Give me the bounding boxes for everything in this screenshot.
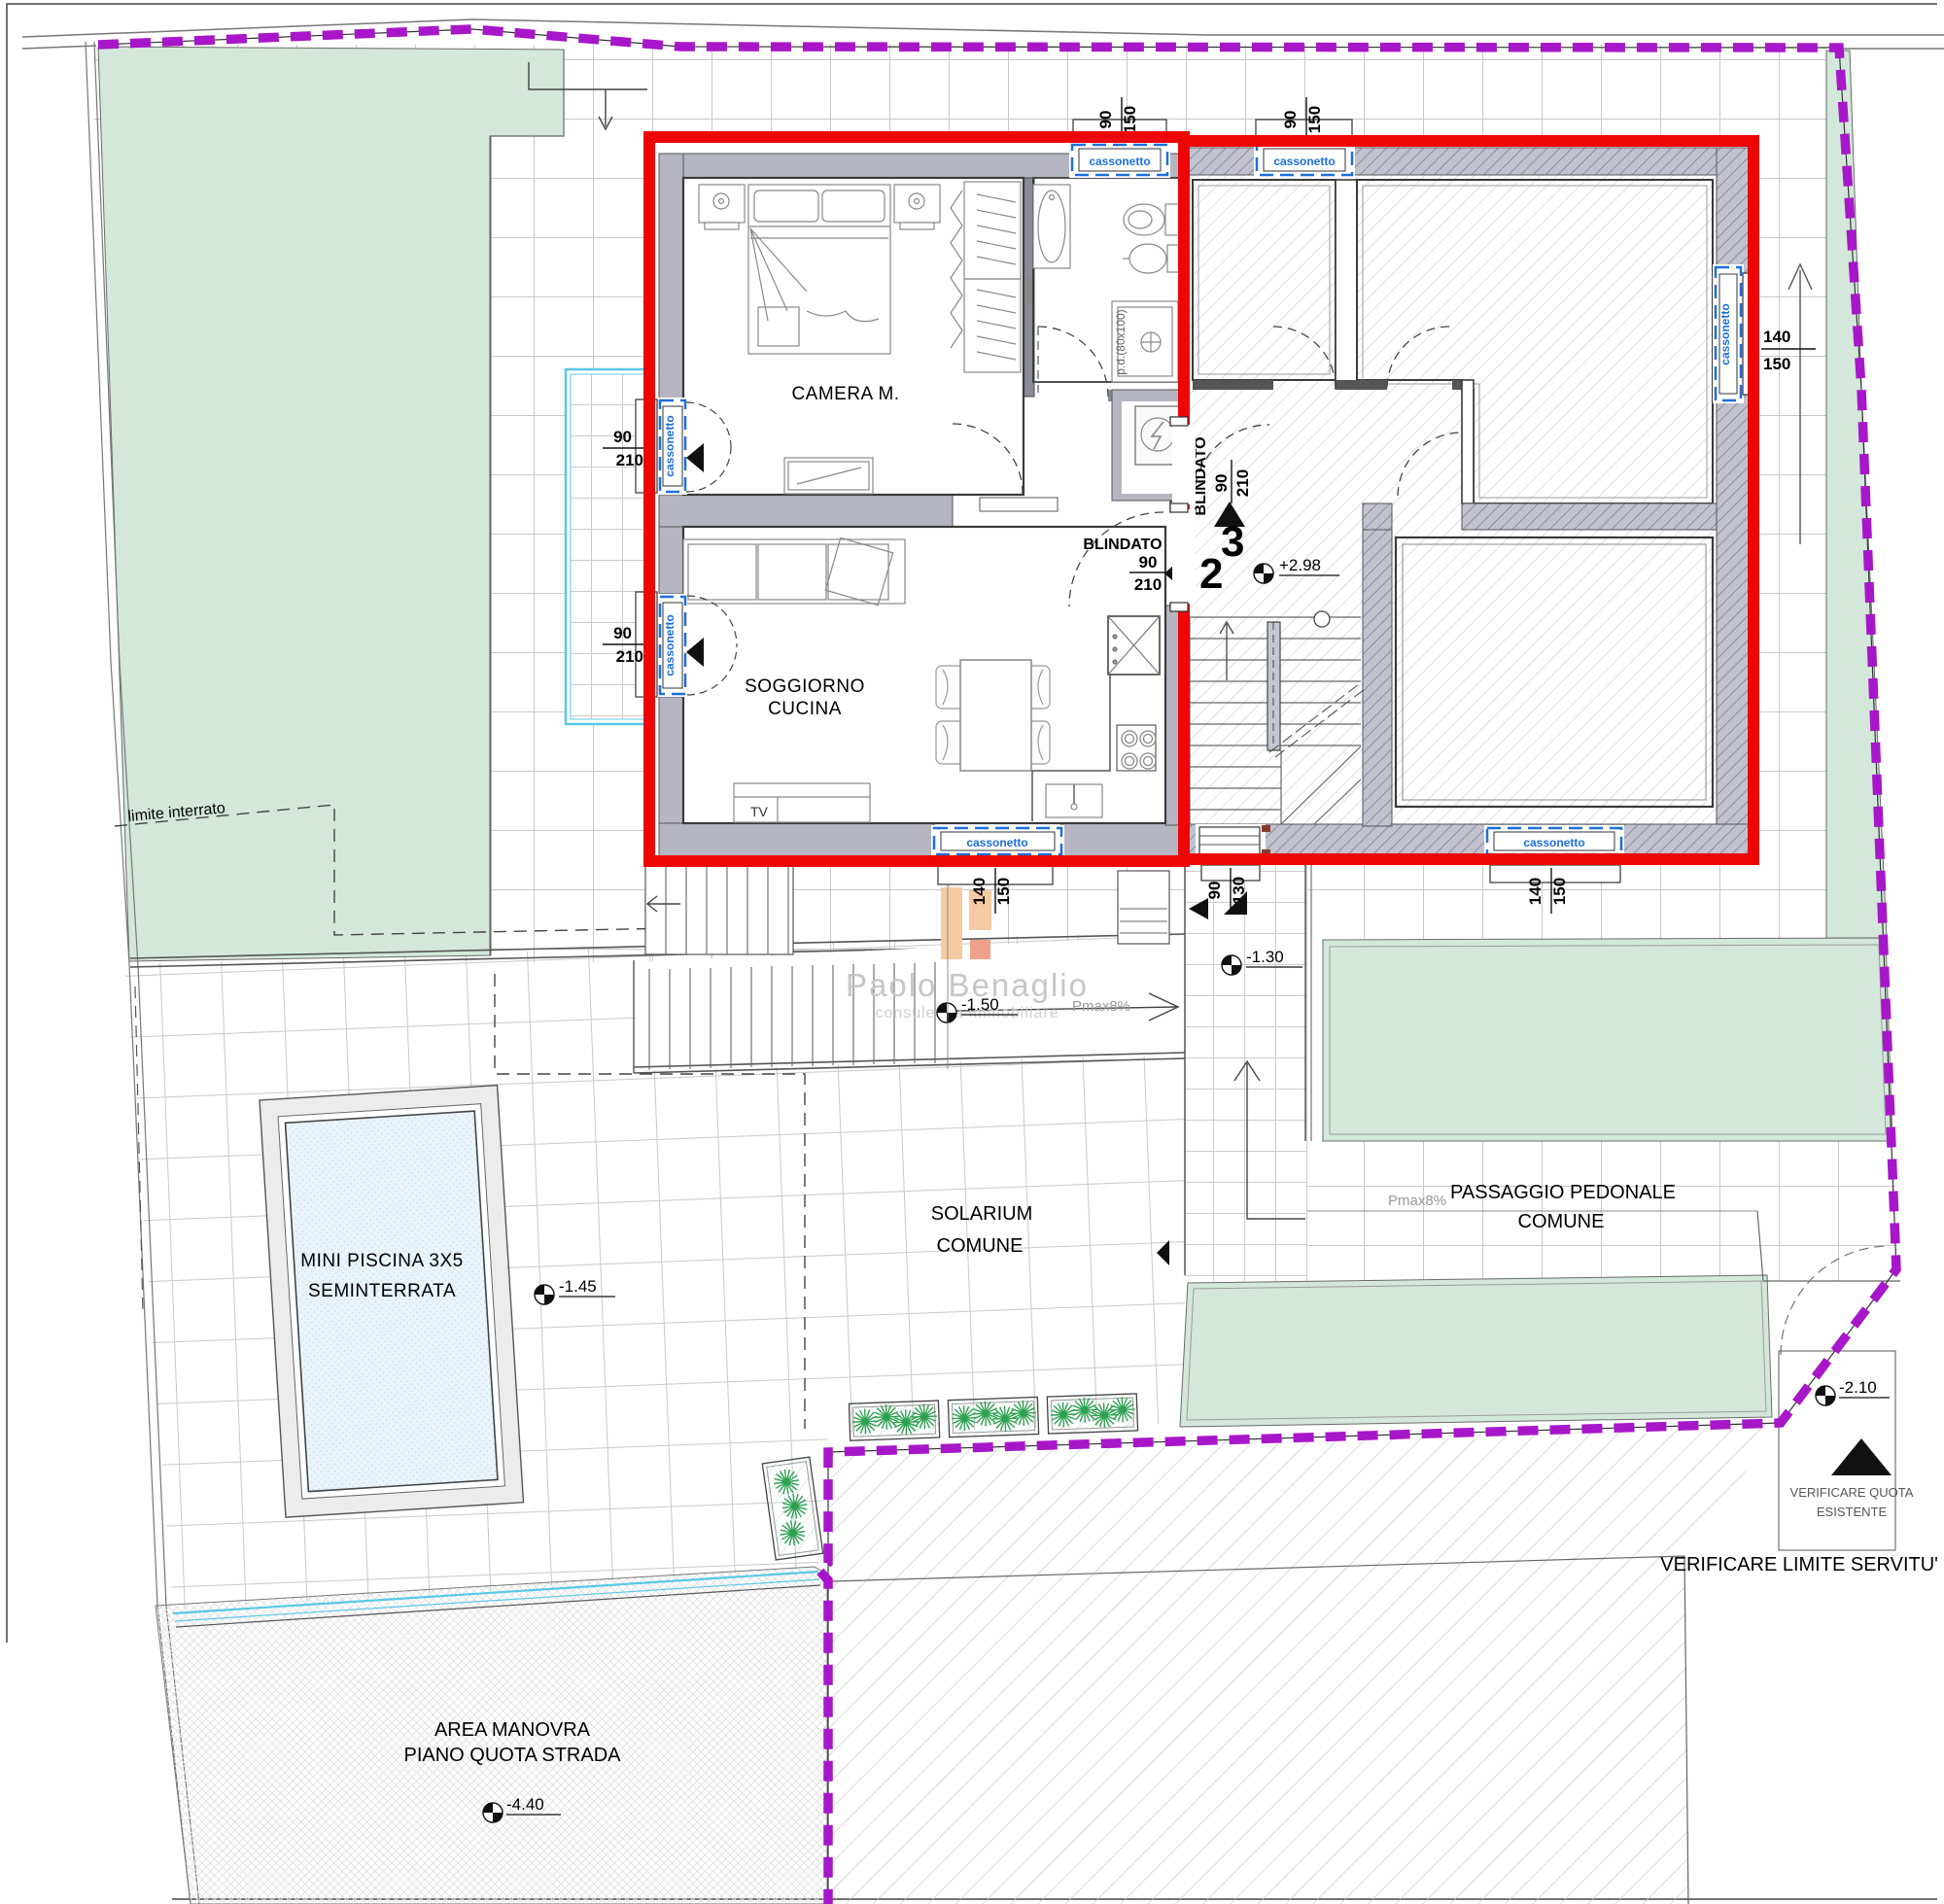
svg-text:210: 210	[1134, 575, 1162, 594]
svg-text:PASSAGGIO PEDONALE: PASSAGGIO PEDONALE	[1450, 1182, 1676, 1203]
svg-text:140: 140	[970, 878, 989, 905]
svg-text:2: 2	[1199, 550, 1223, 598]
svg-text:150: 150	[994, 878, 1013, 905]
svg-text:+2.98: +2.98	[1279, 556, 1321, 574]
svg-text:90: 90	[1205, 882, 1224, 900]
svg-text:CUCINA: CUCINA	[768, 699, 842, 719]
svg-text:150: 150	[1121, 106, 1139, 133]
svg-text:90: 90	[1096, 111, 1115, 129]
svg-text:TV: TV	[750, 804, 769, 819]
svg-text:cassonetto: cassonetto	[966, 836, 1027, 849]
svg-text:150: 150	[1763, 355, 1790, 373]
svg-text:90: 90	[1212, 474, 1231, 493]
svg-text:-2.10: -2.10	[1839, 1378, 1877, 1397]
svg-text:cassonetto: cassonetto	[663, 415, 677, 476]
svg-text:cassonetto: cassonetto	[1718, 303, 1732, 364]
svg-text:cassonetto: cassonetto	[1523, 836, 1584, 849]
svg-text:150: 150	[1305, 106, 1324, 133]
svg-text:ESISTENTE: ESISTENTE	[1817, 1505, 1888, 1519]
svg-text:cassonetto: cassonetto	[1089, 155, 1150, 168]
svg-text:COMUNE: COMUNE	[937, 1235, 1024, 1257]
svg-text:140: 140	[1763, 328, 1790, 346]
svg-text:210: 210	[616, 647, 643, 666]
svg-text:BLINDATO: BLINDATO	[1083, 537, 1162, 553]
svg-text:-4.40: -4.40	[506, 1795, 544, 1814]
svg-text:90: 90	[1139, 553, 1158, 571]
svg-text:cassonetto: cassonetto	[663, 614, 677, 675]
svg-text:3: 3	[1221, 518, 1244, 566]
svg-text:-1.45: -1.45	[559, 1277, 597, 1296]
svg-text:-1.50: -1.50	[961, 995, 999, 1014]
svg-text:90: 90	[1281, 111, 1300, 129]
svg-text:Pmax8%: Pmax8%	[1388, 1193, 1446, 1209]
svg-text:MINI PISCINA 3X5: MINI PISCINA 3X5	[300, 1251, 463, 1271]
svg-text:210: 210	[1233, 469, 1252, 497]
svg-text:SEMINTERRATA: SEMINTERRATA	[308, 1281, 456, 1301]
svg-text:COMUNE: COMUNE	[1518, 1211, 1605, 1232]
svg-text:-1.30: -1.30	[1246, 948, 1284, 966]
svg-text:cassonetto: cassonetto	[1273, 155, 1335, 168]
svg-text:90: 90	[613, 624, 632, 642]
svg-text:210: 210	[616, 451, 643, 469]
svg-text:SOGGIORNO: SOGGIORNO	[745, 676, 865, 697]
svg-text:SOLARIUM: SOLARIUM	[931, 1203, 1032, 1225]
svg-text:Pmax8%: Pmax8%	[1072, 998, 1130, 1015]
svg-text:CAMERA M.: CAMERA M.	[791, 384, 899, 404]
svg-text:VERIFICARE QUOTA: VERIFICARE QUOTA	[1790, 1485, 1914, 1500]
svg-text:140: 140	[1526, 878, 1545, 905]
svg-text:VERIFICARE LIMITE SERVITU': VERIFICARE LIMITE SERVITU'	[1660, 1554, 1938, 1575]
svg-text:90: 90	[613, 428, 632, 446]
svg-text:150: 150	[1550, 878, 1569, 905]
svg-text:PIANO QUOTA STRADA: PIANO QUOTA STRADA	[404, 1745, 622, 1766]
svg-text:p.d.(80x100): p.d.(80x100)	[1114, 309, 1128, 374]
svg-text:AREA MANOVRA: AREA MANOVRA	[434, 1719, 591, 1741]
